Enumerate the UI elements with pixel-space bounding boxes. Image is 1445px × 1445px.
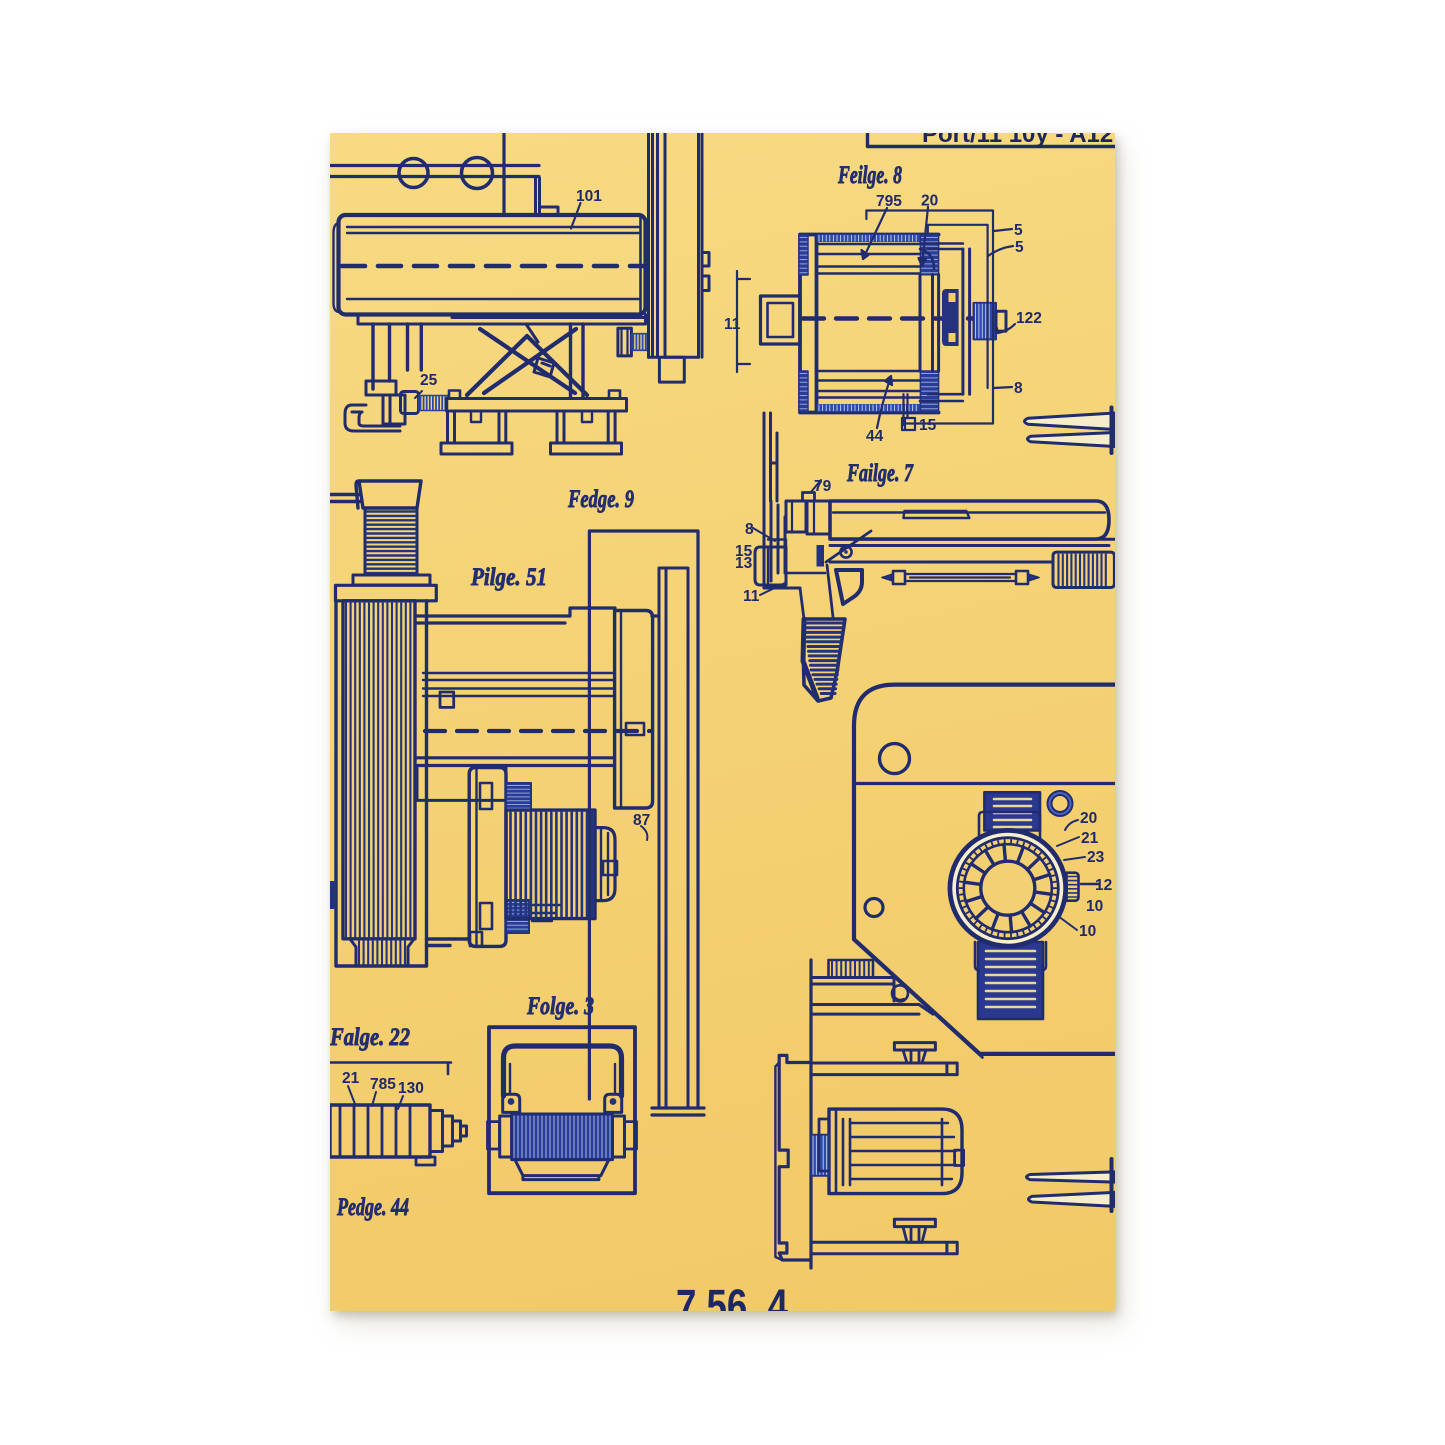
svg-text:11: 11 <box>724 316 741 333</box>
svg-text:795: 795 <box>876 193 902 210</box>
svg-text:Folge. 3: Folge. 3 <box>526 993 594 1020</box>
svg-text:20: 20 <box>921 193 938 210</box>
svg-text:12: 12 <box>1095 877 1112 894</box>
svg-text:Feilge. 8: Feilge. 8 <box>837 162 902 189</box>
svg-text:11: 11 <box>743 588 760 605</box>
svg-text:Fedge. 9: Fedge. 9 <box>567 486 634 513</box>
svg-text:Falge. 22: Falge. 22 <box>330 1024 410 1051</box>
svg-text:Port/11 10y - A12: Port/11 10y - A12 <box>922 133 1113 148</box>
svg-text:21: 21 <box>342 1070 360 1087</box>
svg-text:44: 44 <box>866 428 884 445</box>
svg-text:130: 130 <box>398 1080 424 1097</box>
svg-text:21: 21 <box>1081 830 1099 847</box>
svg-text:8: 8 <box>1014 380 1023 397</box>
svg-text:5: 5 <box>1014 222 1023 239</box>
svg-text:15: 15 <box>919 417 937 434</box>
svg-text:122: 122 <box>1016 310 1042 327</box>
svg-text:Failge. 7: Failge. 7 <box>846 460 914 487</box>
svg-text:7.56. 4: 7.56. 4 <box>676 1280 788 1311</box>
svg-text:10: 10 <box>1079 923 1096 940</box>
svg-text:8: 8 <box>745 521 754 538</box>
svg-text:13: 13 <box>735 555 753 572</box>
svg-text:23: 23 <box>1087 849 1105 866</box>
svg-text:25: 25 <box>420 372 438 389</box>
svg-text:Pilge. 51: Pilge. 51 <box>470 564 547 591</box>
svg-text:5: 5 <box>1015 239 1024 256</box>
svg-text:785: 785 <box>370 1076 396 1093</box>
svg-text:10: 10 <box>1086 898 1103 915</box>
svg-text:20: 20 <box>1080 810 1097 827</box>
svg-text:Pedge. 44: Pedge. 44 <box>336 1194 409 1221</box>
